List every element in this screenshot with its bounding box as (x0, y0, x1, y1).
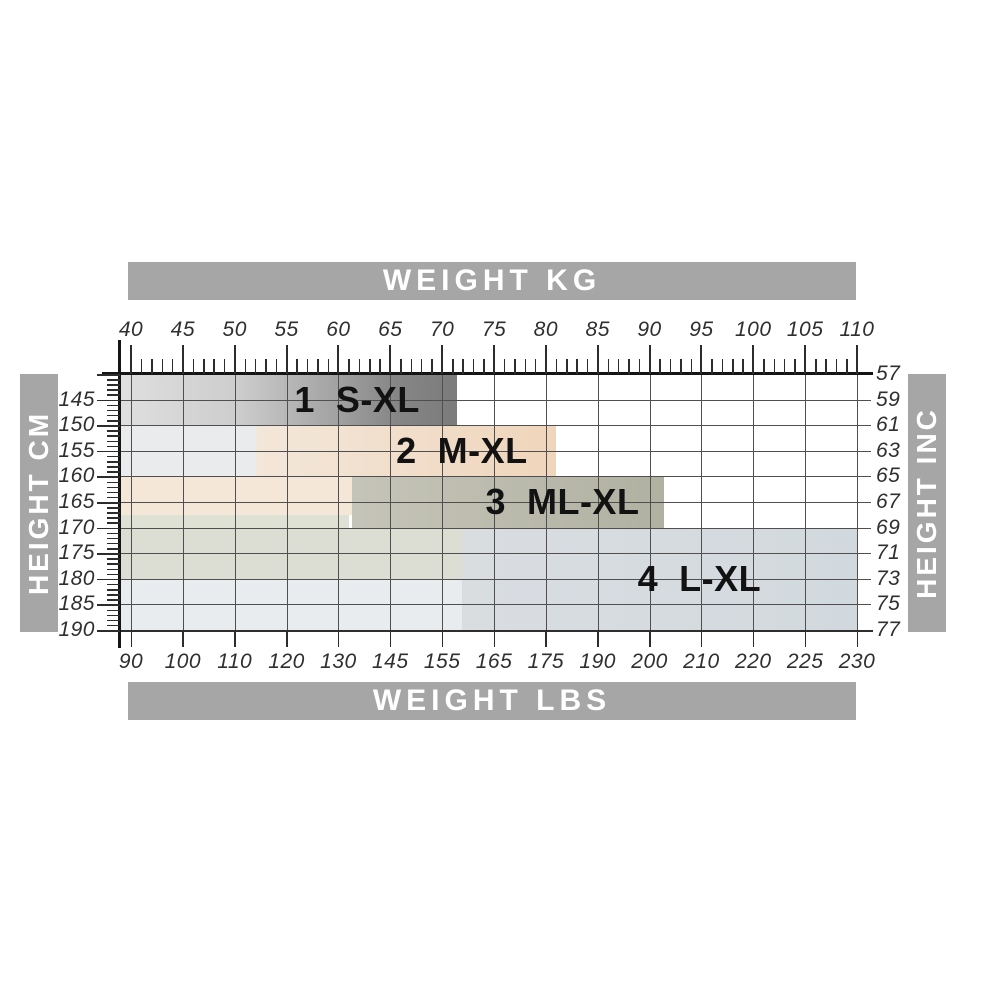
cm-major-tick (97, 579, 120, 581)
cm-minor-tick (107, 466, 120, 468)
inch-tick-label-57: 57 (876, 364, 906, 384)
lbs-tick-130 (338, 630, 340, 647)
cm-minor-tick (107, 430, 120, 432)
kg-major-tick-45 (182, 345, 184, 374)
kg-tick-label-75: 75 (482, 320, 506, 340)
inch-tick-label-65: 65 (876, 466, 906, 486)
cm-major-tick (97, 476, 120, 478)
kg-minor-tick-106 (815, 359, 817, 374)
cm-minor-tick (107, 446, 120, 448)
cm-major-tick (97, 400, 120, 402)
kg-minor-tick-109 (846, 359, 848, 374)
cm-minor-tick (107, 410, 120, 412)
kg-minor-tick-73 (473, 359, 475, 374)
lbs-tick-label-230: 230 (839, 652, 876, 672)
horizontal-gridline-1 (120, 400, 871, 401)
cm-minor-tick (107, 389, 120, 391)
horizontal-gridline-6 (120, 528, 871, 529)
cm-minor-tick (107, 563, 120, 565)
lbs-tick-110 (234, 630, 236, 647)
kg-minor-tick-98 (732, 359, 734, 374)
kg-tick-label-40: 40 (119, 320, 143, 340)
kg-minor-tick-69 (431, 359, 433, 374)
inch-tick-label-67: 67 (876, 492, 906, 512)
kg-minor-tick-67 (411, 359, 413, 374)
kg-minor-tick-78 (525, 359, 527, 374)
weight-kg-bar-label: WEIGHT KG (383, 264, 601, 298)
cm-minor-tick (107, 548, 120, 550)
kg-minor-tick-53 (265, 359, 267, 374)
inch-tick-label-59: 59 (876, 390, 906, 410)
kg-minor-tick-47 (203, 359, 205, 374)
lbs-tick-label-110: 110 (217, 652, 252, 672)
cm-minor-tick (107, 456, 120, 458)
kg-minor-tick-76 (504, 359, 506, 374)
size-region-label-2: 2 M-XL (396, 430, 528, 472)
kg-minor-tick-52 (255, 359, 257, 374)
kg-minor-tick-74 (483, 359, 485, 374)
cm-minor-tick (107, 610, 120, 612)
kg-minor-tick-71 (452, 359, 454, 374)
height-inc-bar: HEIGHT INC (908, 374, 946, 632)
horizontal-gridline-7 (120, 553, 871, 554)
cm-minor-tick (107, 394, 120, 396)
kg-minor-tick-89 (639, 359, 641, 374)
cm-minor-tick (107, 441, 120, 443)
lbs-tick-90 (131, 630, 133, 647)
lbs-tick-label-190: 190 (579, 652, 616, 672)
cm-minor-tick (107, 420, 120, 422)
kg-minor-tick-91 (659, 359, 661, 374)
cm-minor-tick (107, 461, 120, 463)
kg-minor-tick-44 (172, 359, 174, 374)
kg-major-tick-60 (337, 345, 339, 374)
kg-minor-tick-41 (141, 359, 143, 374)
left-axis-line (118, 340, 121, 648)
kg-tick-label-95: 95 (689, 320, 713, 340)
inch-tick-label-69: 69 (876, 518, 906, 538)
kg-minor-tick-49 (224, 359, 226, 374)
kg-minor-tick-77 (514, 359, 516, 374)
kg-minor-tick-46 (193, 359, 195, 374)
cm-minor-tick (107, 471, 120, 473)
kg-tick-label-80: 80 (534, 320, 558, 340)
lbs-tick-label-200: 200 (631, 652, 668, 672)
kg-major-tick-65 (389, 345, 391, 374)
horizontal-gridline-9 (120, 604, 871, 605)
kg-major-tick-110 (856, 345, 858, 374)
cm-minor-tick (107, 599, 120, 601)
kg-major-tick-55 (286, 345, 288, 374)
kg-tick-label-55: 55 (274, 320, 298, 340)
kg-major-tick-90 (649, 345, 651, 374)
size-region-label-1: 1 S-XL (294, 379, 420, 421)
inch-tick-label-61: 61 (876, 415, 906, 435)
cm-tick-label-190: 190 (48, 620, 95, 640)
bottom-axis-line (102, 630, 873, 632)
lbs-tick-220 (753, 630, 755, 647)
kg-minor-tick-58 (317, 359, 319, 374)
kg-minor-tick-96 (711, 359, 713, 374)
cm-major-tick (97, 553, 120, 555)
weight-lbs-bar: WEIGHT LBS (128, 682, 856, 720)
weight-kg-bar: WEIGHT KG (128, 262, 856, 300)
kg-major-tick-85 (597, 345, 599, 374)
cm-minor-tick (107, 615, 120, 617)
kg-major-tick-75 (493, 345, 495, 374)
kg-minor-tick-51 (245, 359, 247, 374)
cm-minor-tick (107, 558, 120, 560)
kg-tick-label-110: 110 (840, 320, 875, 340)
kg-minor-tick-86 (608, 359, 610, 374)
cm-tick-label-165: 165 (48, 492, 95, 512)
kg-minor-tick-92 (670, 359, 672, 374)
kg-major-tick-40 (130, 345, 132, 374)
weight-lbs-bar-label: WEIGHT LBS (373, 684, 611, 718)
cm-minor-tick (107, 533, 120, 535)
lbs-tick-label-210: 210 (683, 652, 720, 672)
cm-minor-tick (107, 574, 120, 576)
lbs-tick-120 (286, 630, 288, 647)
cm-minor-tick (107, 538, 120, 540)
kg-tick-label-65: 65 (378, 320, 402, 340)
cm-tick-label-150: 150 (48, 415, 95, 435)
kg-minor-tick-101 (763, 359, 765, 374)
kg-tick-label-85: 85 (586, 320, 610, 340)
cm-minor-tick (107, 625, 120, 627)
kg-minor-tick-108 (836, 359, 838, 374)
cm-minor-tick (107, 507, 120, 509)
lbs-tick-200 (649, 630, 651, 647)
kg-minor-tick-72 (462, 359, 464, 374)
cm-minor-tick (107, 517, 120, 519)
kg-minor-tick-48 (213, 359, 215, 374)
cm-minor-tick (107, 487, 120, 489)
lbs-tick-175 (545, 630, 547, 647)
cm-minor-tick (107, 569, 120, 571)
horizontal-gridline-2 (120, 425, 871, 426)
kg-tick-label-100: 100 (735, 320, 772, 340)
kg-minor-tick-66 (400, 359, 402, 374)
cm-major-tick (97, 451, 120, 453)
kg-minor-tick-62 (359, 359, 361, 374)
kg-minor-tick-94 (691, 359, 693, 374)
lbs-tick-100 (182, 630, 184, 647)
kg-major-tick-95 (700, 345, 702, 374)
kg-major-tick-70 (441, 345, 443, 374)
lbs-tick-225 (805, 630, 807, 647)
kg-tick-label-90: 90 (637, 320, 661, 340)
cm-tick-label-180: 180 (48, 569, 95, 589)
kg-minor-tick-61 (348, 359, 350, 374)
cm-major-tick (97, 374, 120, 376)
cm-minor-tick (107, 379, 120, 381)
size-region-label-3: 3 ML-XL (485, 481, 639, 523)
lbs-tick-210 (701, 630, 703, 647)
kg-minor-tick-107 (825, 359, 827, 374)
cm-tick-label-170: 170 (48, 518, 95, 538)
lbs-tick-label-225: 225 (787, 652, 824, 672)
cm-tick-label-175: 175 (48, 543, 95, 563)
lbs-tick-label-145: 145 (372, 652, 409, 672)
kg-major-tick-50 (234, 345, 236, 374)
cm-major-tick (97, 528, 120, 530)
kg-minor-tick-68 (421, 359, 423, 374)
kg-minor-tick-88 (628, 359, 630, 374)
kg-tick-label-70: 70 (430, 320, 454, 340)
lbs-tick-230 (857, 630, 859, 647)
cm-minor-tick (107, 482, 120, 484)
top-axis-line (102, 372, 873, 375)
lbs-tick-label-130: 130 (320, 652, 357, 672)
cm-minor-tick (107, 589, 120, 591)
cm-minor-tick (107, 435, 120, 437)
inch-tick-label-75: 75 (876, 594, 906, 614)
lbs-tick-label-175: 175 (528, 652, 565, 672)
kg-minor-tick-87 (618, 359, 620, 374)
kg-minor-tick-93 (680, 359, 682, 374)
kg-tick-label-60: 60 (326, 320, 350, 340)
kg-minor-tick-104 (794, 359, 796, 374)
cm-major-tick (97, 630, 120, 632)
kg-tick-label-45: 45 (171, 320, 195, 340)
lbs-tick-label-155: 155 (424, 652, 461, 672)
size-region-label-4: 4 L-XL (638, 558, 762, 600)
cm-minor-tick (107, 384, 120, 386)
kg-minor-tick-56 (296, 359, 298, 374)
cm-minor-tick (107, 543, 120, 545)
kg-minor-tick-64 (379, 359, 381, 374)
cm-minor-tick (107, 492, 120, 494)
cm-tick-label-155: 155 (48, 441, 95, 461)
cm-minor-tick (107, 512, 120, 514)
kg-minor-tick-43 (162, 359, 164, 374)
kg-minor-tick-81 (556, 359, 558, 374)
lbs-tick-190 (597, 630, 599, 647)
cm-tick-label-145: 145 (48, 390, 95, 410)
size-region-underlay-2 (120, 476, 356, 514)
kg-minor-tick-63 (369, 359, 371, 374)
kg-minor-tick-102 (774, 359, 776, 374)
kg-tick-label-105: 105 (787, 320, 824, 340)
cm-major-tick (97, 425, 120, 427)
kg-tick-label-50: 50 (223, 320, 247, 340)
kg-major-tick-100 (752, 345, 754, 374)
lbs-tick-label-165: 165 (476, 652, 513, 672)
kg-minor-tick-42 (151, 359, 153, 374)
inch-tick-label-77: 77 (876, 620, 906, 640)
inch-tick-label-73: 73 (876, 569, 906, 589)
cm-major-tick (97, 502, 120, 504)
size-chart: WEIGHT KG WEIGHT LBS HEIGHT CM HEIGHT IN… (0, 0, 1000, 1001)
kg-major-tick-105 (804, 345, 806, 374)
kg-major-tick-80 (545, 345, 547, 374)
lbs-tick-145 (390, 630, 392, 647)
inch-tick-label-71: 71 (876, 543, 906, 563)
cm-minor-tick (107, 415, 120, 417)
cm-minor-tick (107, 497, 120, 499)
lbs-tick-label-220: 220 (735, 652, 772, 672)
kg-minor-tick-54 (276, 359, 278, 374)
cm-tick-label-160: 160 (48, 466, 95, 486)
kg-minor-tick-57 (307, 359, 309, 374)
kg-minor-tick-84 (587, 359, 589, 374)
lbs-tick-label-120: 120 (268, 652, 305, 672)
kg-minor-tick-79 (535, 359, 537, 374)
lbs-tick-155 (442, 630, 444, 647)
kg-minor-tick-99 (742, 359, 744, 374)
kg-minor-tick-59 (328, 359, 330, 374)
kg-minor-tick-97 (722, 359, 724, 374)
cm-minor-tick (107, 584, 120, 586)
cm-minor-tick (107, 620, 120, 622)
lbs-tick-165 (494, 630, 496, 647)
cm-tick-label-185: 185 (48, 594, 95, 614)
kg-minor-tick-82 (566, 359, 568, 374)
cm-minor-tick (107, 405, 120, 407)
cm-minor-tick (107, 594, 120, 596)
cm-major-tick (97, 604, 120, 606)
height-inc-bar-label: HEIGHT INC (911, 407, 943, 599)
kg-minor-tick-83 (576, 359, 578, 374)
cm-minor-tick (107, 522, 120, 524)
horizontal-gridline-4 (120, 476, 871, 477)
kg-minor-tick-103 (784, 359, 786, 374)
inch-tick-label-63: 63 (876, 441, 906, 461)
lbs-tick-label-90: 90 (119, 652, 143, 672)
lbs-tick-label-100: 100 (165, 652, 202, 672)
